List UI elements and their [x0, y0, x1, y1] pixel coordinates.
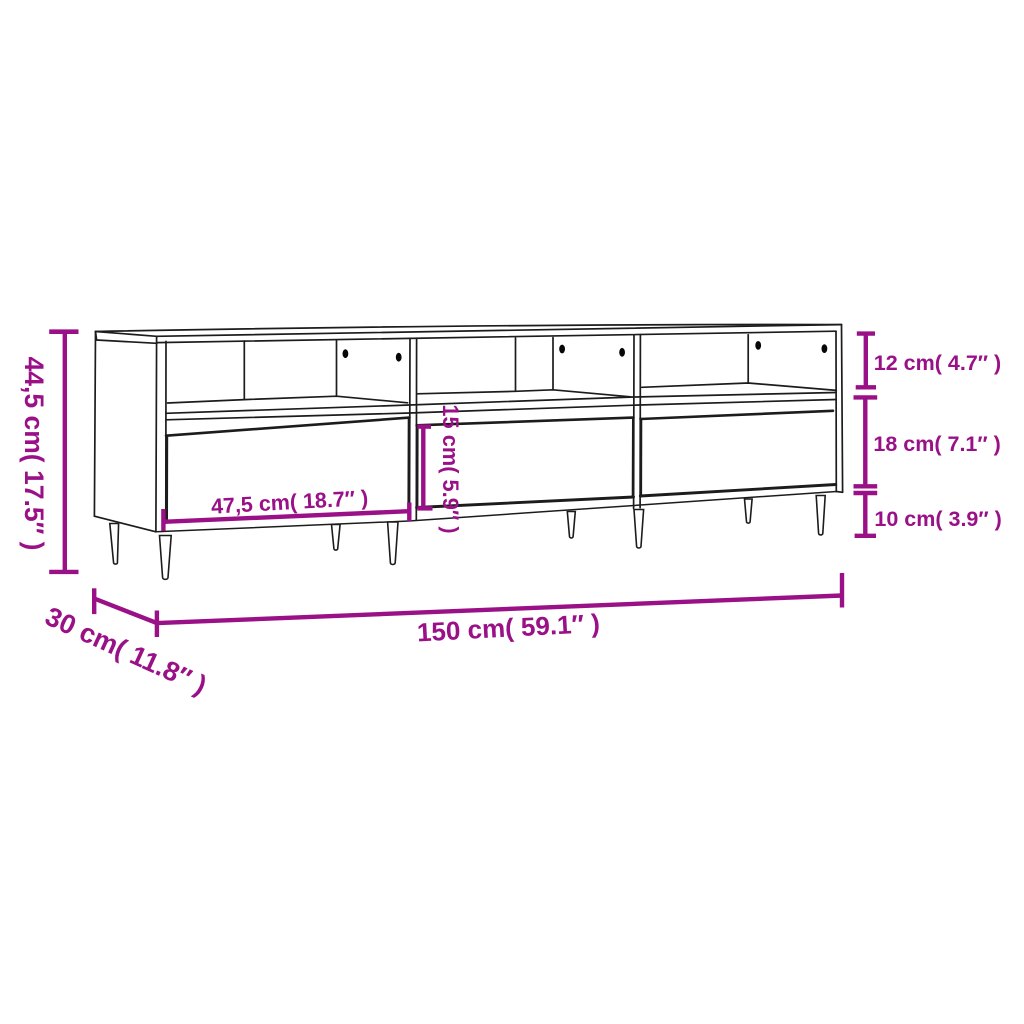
svg-text:15 cm( 5.9″ ): 15 cm( 5.9″ ) [438, 404, 463, 533]
svg-text:12 cm( 4.7″ ): 12 cm( 4.7″ ) [874, 351, 1001, 375]
svg-text:10 cm( 3.9″ ): 10 cm( 3.9″ ) [874, 507, 1001, 531]
svg-text:18 cm( 7.1″ ): 18 cm( 7.1″ ) [873, 432, 1000, 456]
svg-text:44,5 cm( 17.5″ ): 44,5 cm( 17.5″ ) [19, 357, 49, 551]
